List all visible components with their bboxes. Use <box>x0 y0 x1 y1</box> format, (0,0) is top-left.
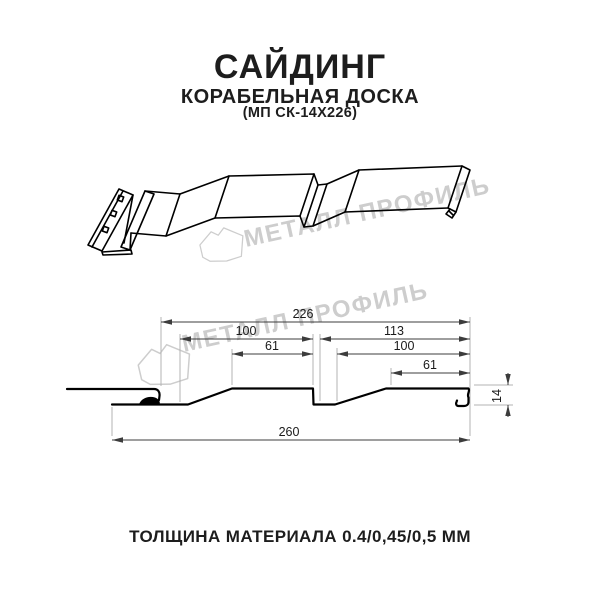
dim-label-61-left: 61 <box>265 339 279 353</box>
lock-hook <box>139 397 160 405</box>
dim-label-226: 226 <box>293 307 314 321</box>
dim-label-260: 260 <box>279 425 300 439</box>
extension-lines <box>112 317 513 436</box>
brand-logo-icon <box>198 226 245 264</box>
dim-label-100-right: 100 <box>394 339 415 353</box>
cross-section-drawing: МЕТАЛЛ ПРОФИЛЬ <box>67 277 513 440</box>
dim-label-14: 14 <box>490 389 504 403</box>
dim-label-61-right: 61 <box>423 358 437 372</box>
dim-label-113: 113 <box>384 324 404 338</box>
page: САЙДИНГ КОРАБЕЛЬНАЯ ДОСКА (МП СК-14Х226) <box>0 0 600 600</box>
profile-3d-drawing: МЕТАЛЛ ПРОФИЛЬ <box>88 166 493 264</box>
technical-drawing: МЕТАЛЛ ПРОФИЛЬ <box>0 0 600 600</box>
dimension-lines <box>112 322 508 440</box>
thickness-note: ТОЛЩИНА МАТЕРИАЛА 0.4/0,45/0,5 ММ <box>0 527 600 547</box>
section-profile <box>67 389 469 407</box>
dim-label-100-left: 100 <box>236 324 257 338</box>
